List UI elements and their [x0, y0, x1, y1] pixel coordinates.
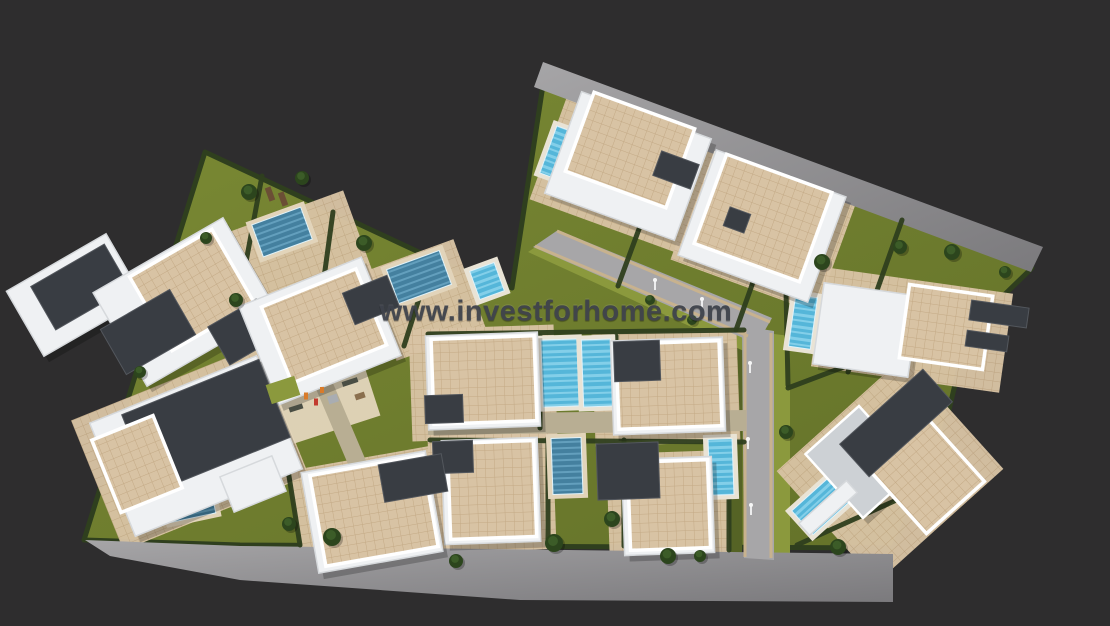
pool-center-3: [551, 437, 583, 494]
tree-canopy-light: [833, 541, 842, 550]
light-pole: [654, 281, 656, 290]
tree-canopy-light: [1001, 267, 1008, 274]
tree-canopy-light: [696, 551, 703, 558]
tree-canopy-light: [231, 294, 239, 302]
light-pole: [747, 440, 749, 449]
tree-canopy-light: [136, 367, 143, 374]
playground-figure-6: [314, 399, 318, 406]
tree-canopy-light: [895, 241, 903, 249]
light-head: [653, 278, 657, 282]
tree-canopy-light: [244, 186, 253, 195]
tree-canopy-light: [663, 550, 672, 559]
light-pole: [749, 364, 751, 373]
tree-canopy-light: [781, 426, 789, 434]
palm-tree-1: [295, 171, 311, 187]
buildings-layer: [6, 92, 1029, 580]
tree-canopy-light: [817, 256, 826, 265]
tree-canopy-light: [947, 246, 956, 255]
tree-canopy-light: [284, 518, 292, 526]
tree-canopy-light: [202, 233, 209, 240]
main-road: [742, 326, 774, 560]
villa-center-2: [610, 337, 730, 441]
playground-figure-5: [304, 393, 308, 400]
tree-canopy-light: [451, 555, 459, 563]
light-pole: [750, 506, 752, 515]
villa-center-4-dark-2: [596, 442, 660, 500]
watermark-text: www.investforhome.com: [380, 296, 733, 329]
light-head: [748, 361, 752, 365]
villa-center-3: [432, 437, 545, 550]
tree-canopy-light: [359, 237, 368, 246]
tree-canopy-light: [607, 513, 616, 522]
pool-center-1: [541, 339, 579, 407]
villa-center-1-dark-2: [425, 394, 464, 423]
villa-bottom-left: [301, 451, 448, 579]
tree-canopy-light: [548, 536, 558, 546]
villa-right-1-tile-1: [899, 285, 992, 370]
tree-canopy-light: [326, 530, 336, 540]
tree-canopy-light: [297, 172, 305, 180]
playground-figure-7: [320, 387, 324, 393]
villa-center-1: [425, 332, 546, 436]
pool-center-2: [581, 339, 612, 407]
site-plan-render: www.investforhome.com: [0, 0, 1110, 626]
light-head: [749, 503, 753, 507]
villa-center-2-dark-2: [613, 340, 660, 382]
light-head: [746, 437, 750, 441]
